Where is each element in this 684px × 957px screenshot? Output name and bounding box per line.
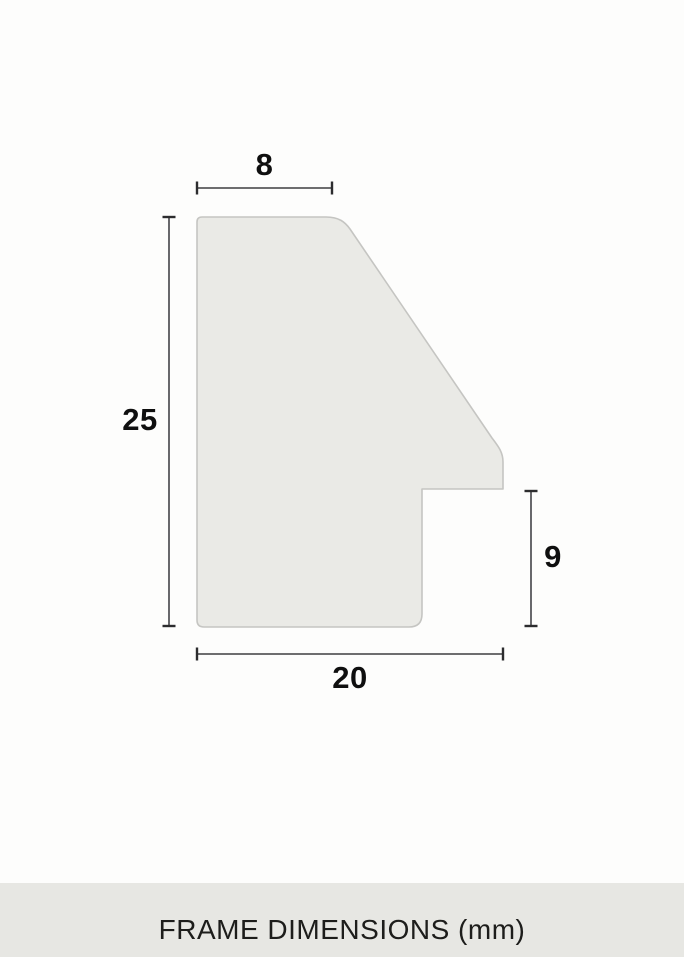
profile-diagram-svg: [0, 0, 684, 957]
dim-label-left-height: 25: [100, 404, 180, 436]
frame-dimensions-diagram: 8 25 9 20 FRAME DIMENSIONS (mm): [0, 0, 684, 957]
dim-label-bottom-width: 20: [197, 662, 503, 694]
dim-label-right-height: 9: [513, 541, 593, 573]
dim-label-top-width: 8: [197, 149, 332, 181]
frame-profile-shape: [197, 217, 503, 627]
footer-caption: FRAME DIMENSIONS (mm): [159, 914, 526, 946]
footer-bar: FRAME DIMENSIONS (mm): [0, 883, 684, 957]
